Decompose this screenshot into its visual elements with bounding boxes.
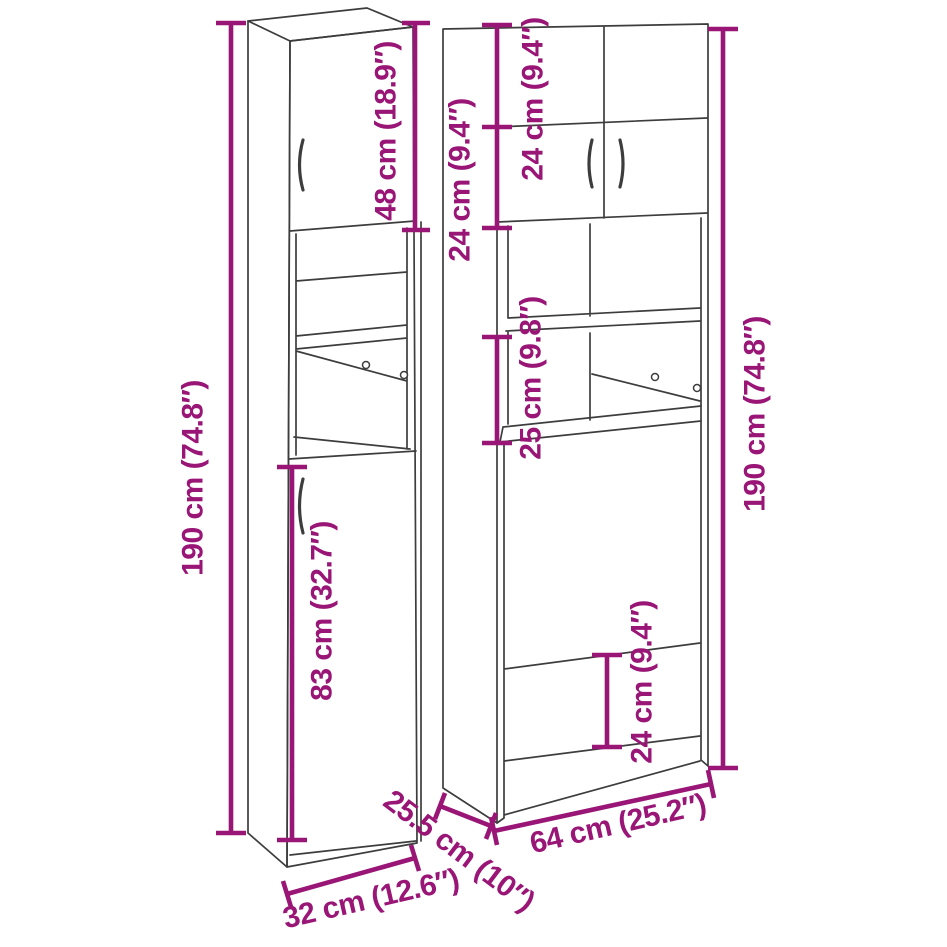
dim-label-left-width: 32 cm (12.6″) — [280, 863, 462, 936]
dim-label-right-base-rail: 24 cm (9.4″) — [626, 600, 659, 763]
left-cabinet-top-door-bottom-edge — [290, 221, 415, 231]
right-cabinet-screw-hole-1 — [652, 374, 659, 381]
left-cabinet-screw-hole-1 — [363, 362, 370, 369]
dim-line-right-base-rail — [592, 655, 622, 747]
dim-label-left-bottom-door: 83 cm (32.7″) — [306, 521, 339, 701]
dimension-diagram-page: 190 cm (74.8″) 48 cm (18.9″) 83 cm (32.7… — [0, 0, 947, 947]
left-cabinet-top-door-handle — [300, 140, 304, 190]
dim-label-right-second-section: 24 cm (9.4″) — [444, 98, 477, 261]
right-cabinet-outline — [443, 24, 708, 823]
left-cabinet-bottom-door-bottom-edge — [290, 841, 416, 855]
dim-label-left-height: 190 cm (74.8″) — [177, 380, 210, 576]
right-cabinet-washing-machine-opening — [497, 442, 700, 823]
dim-line-right-height — [708, 29, 738, 768]
right-cabinet-left-door-handle — [589, 140, 592, 187]
right-cabinet-screw-hole-2 — [694, 385, 701, 392]
right-cabinet-right-edge-inner — [701, 218, 708, 766]
dim-line-right-top-sections — [482, 25, 512, 228]
dimension-annotations: 190 cm (74.8″) 48 cm (18.9″) 83 cm (32.7… — [177, 17, 772, 935]
dim-label-right-shelf-gap: 25 cm (9.8″) — [515, 296, 548, 459]
right-cabinet-drawing — [443, 24, 708, 823]
left-cabinet-screw-hole-2 — [401, 372, 408, 379]
dim-line-left-height — [216, 23, 246, 833]
dim-label-left-top-door: 48 cm (18.9″) — [370, 41, 403, 221]
right-cabinet-right-door-handle — [620, 140, 623, 187]
left-cabinet-bottom-door-handle — [300, 479, 304, 533]
dim-label-right-width: 64 cm (25.2″) — [527, 788, 709, 861]
left-cabinet-niche — [289, 228, 416, 459]
dim-line-left-top-door — [402, 23, 430, 230]
left-cabinet-side-panel — [248, 21, 290, 867]
cabinet-dimension-diagram: 190 cm (74.8″) 48 cm (18.9″) 83 cm (32.7… — [0, 0, 947, 947]
dim-label-right-top-section: 24 cm (9.4″) — [517, 17, 550, 180]
dim-label-right-height: 190 cm (74.8″) — [739, 316, 772, 512]
